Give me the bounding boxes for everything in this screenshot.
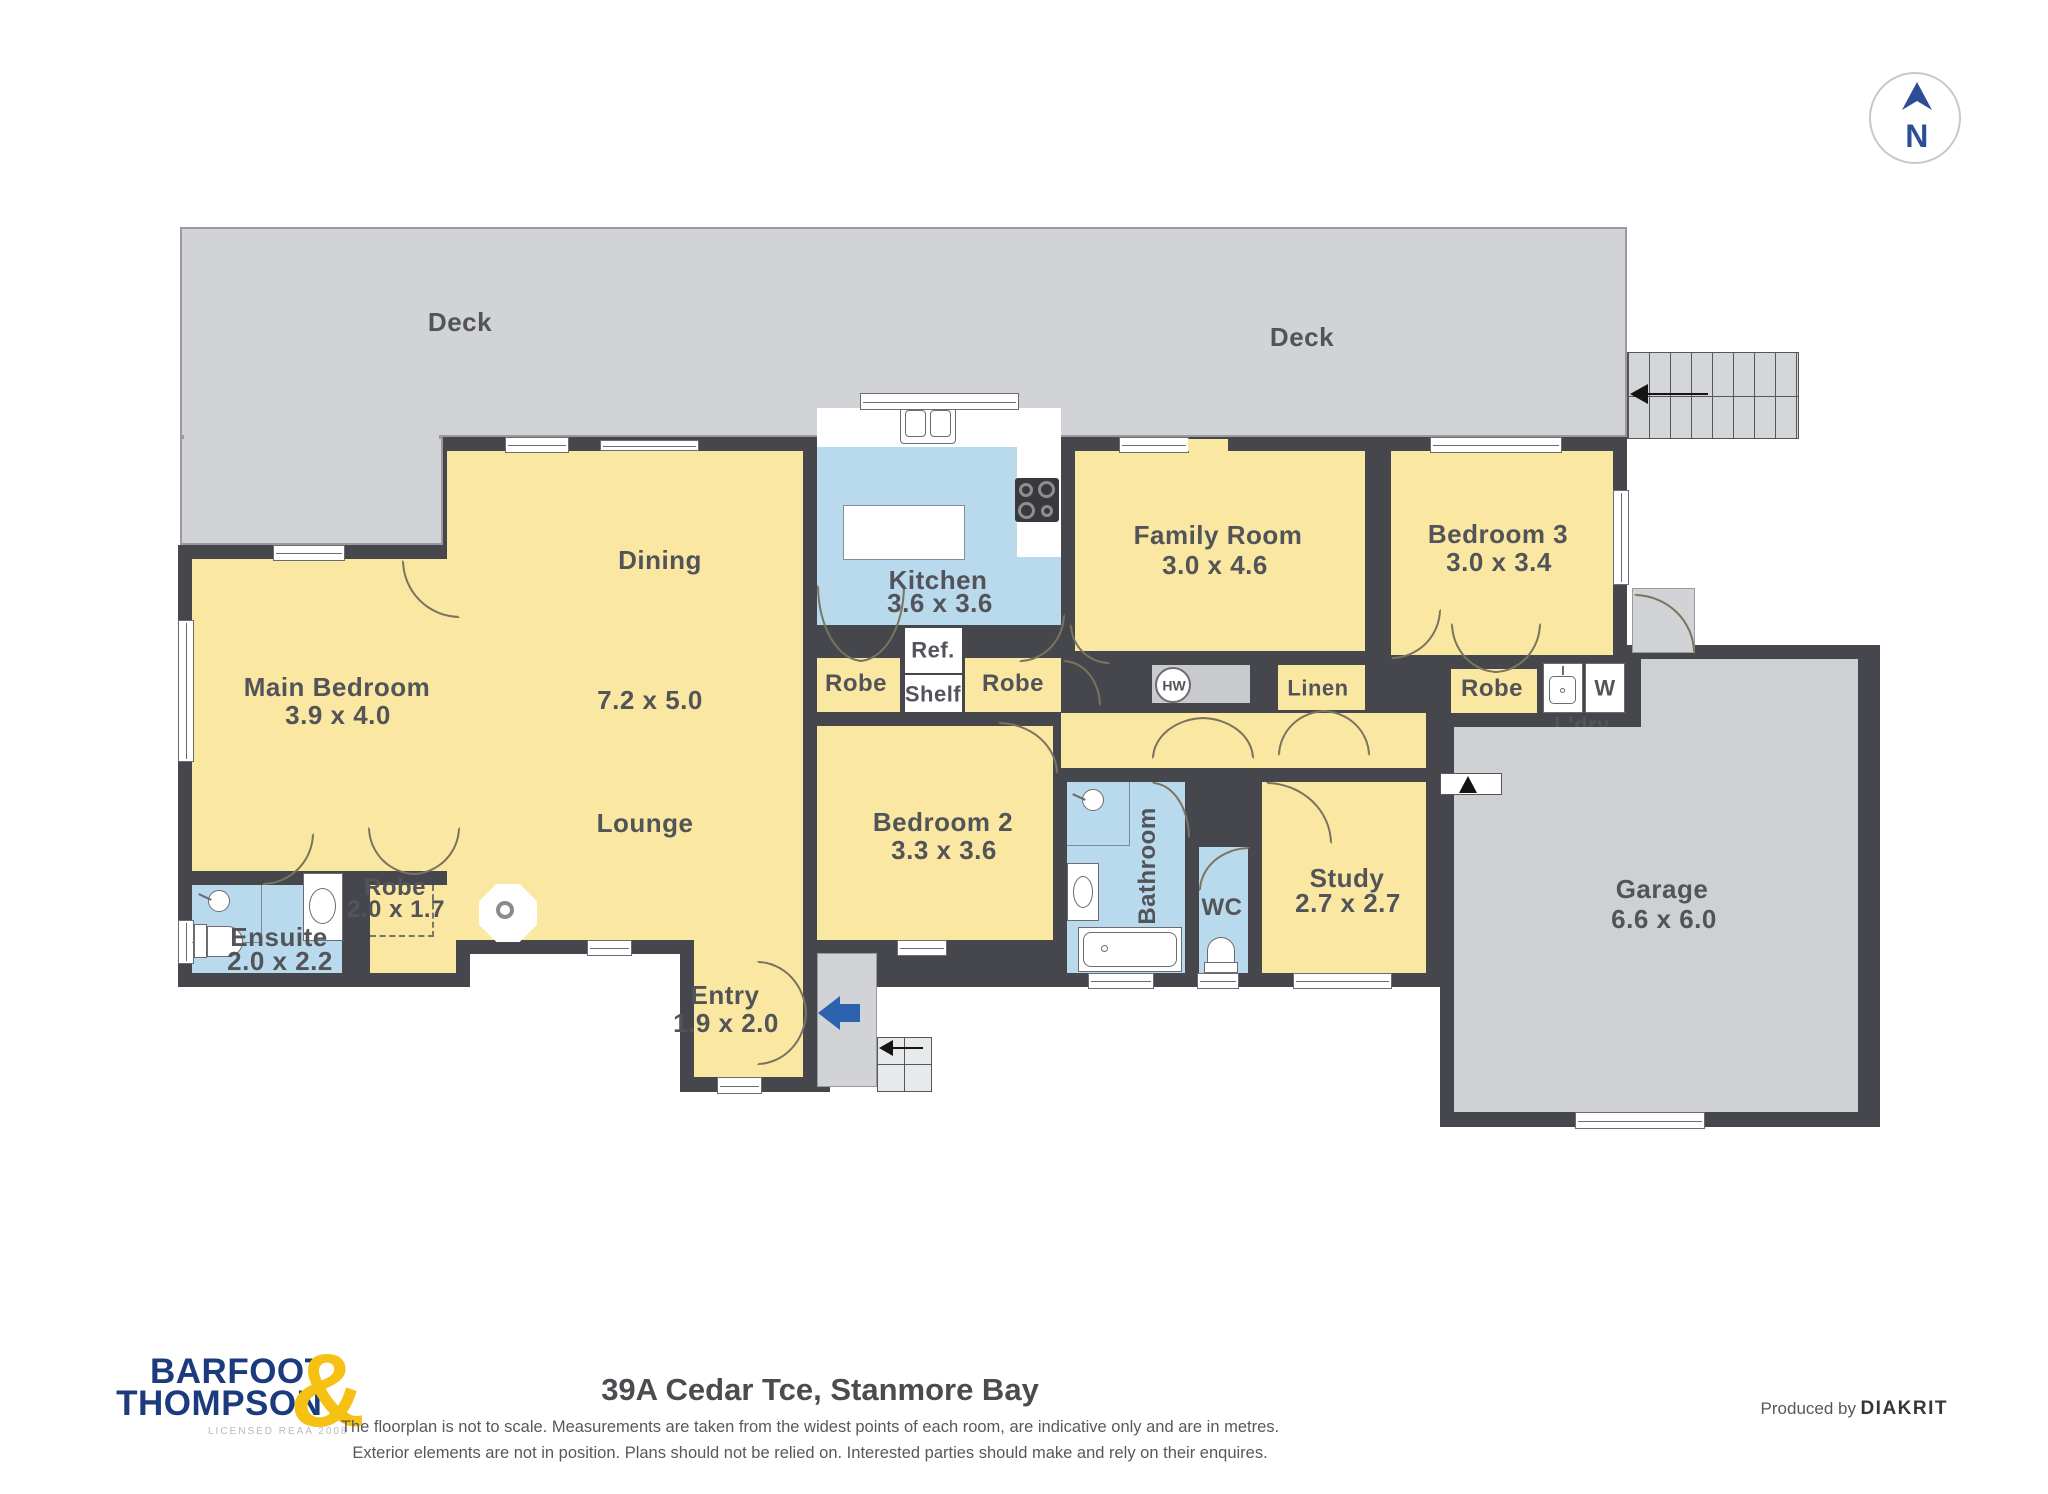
window-bedroom2-bottom	[897, 940, 947, 956]
deck-stairs-midline	[1628, 396, 1798, 397]
floorplan-page: { "compass": { "label": "N" }, "colors":…	[0, 0, 2048, 1494]
produced-by: Produced by DIAKRIT	[1761, 1398, 1948, 1420]
hw-label: HW	[1162, 677, 1185, 695]
deck-seam-patch	[184, 430, 439, 442]
laundry-tub-drain	[1560, 688, 1565, 693]
window-study-bottom	[1293, 973, 1392, 989]
compass: N	[1869, 72, 1961, 164]
address-title: 39A Cedar Tce, Stanmore Bay	[601, 1372, 1039, 1408]
stove-burner-3	[1018, 502, 1035, 519]
shelf-label: Shelf	[905, 680, 961, 708]
kitchen-stove-icon	[1015, 478, 1059, 522]
deck-stairs-down-arrow-icon	[1630, 384, 1648, 404]
slider-opening-family-room	[1188, 439, 1228, 451]
ensuite-sink-basin	[309, 888, 336, 924]
window-dining-2	[600, 440, 699, 451]
wc-label: WC	[1202, 893, 1243, 923]
bathroom-sink-basin	[1073, 876, 1093, 908]
disclaimer-line-1: The floorplan is not to scale. Measureme…	[341, 1414, 1279, 1440]
kitchen-sink-basin-right	[930, 410, 951, 437]
bedroom2-dims: 3.3 x 3.6	[891, 834, 997, 867]
garage-door	[1575, 1112, 1705, 1129]
produced-prefix: Produced by	[1761, 1399, 1856, 1418]
kitchen-sink-icon	[900, 404, 956, 444]
window-family-room	[1119, 437, 1189, 453]
garage-floor-top	[1641, 659, 1858, 727]
window-main-bedroom-left	[178, 620, 194, 762]
bathroom-sink-icon	[1067, 863, 1099, 921]
logo-licensed-text: LICENSED REAA 2008	[208, 1426, 349, 1437]
linen-label: Linen	[1287, 674, 1348, 702]
robe-bedroom3-label: Robe	[1461, 674, 1523, 704]
compass-north-label: N	[1905, 116, 1929, 156]
fridge-label: Ref.	[911, 636, 955, 664]
lounge-label: Lounge	[597, 807, 694, 840]
ensuite-toilet-tank	[194, 924, 207, 958]
window-lounge-bottom	[587, 940, 632, 956]
laundry-tub-icon	[1543, 663, 1583, 713]
kitchen-island	[843, 505, 965, 560]
robe-kitchen-left-label: Robe	[825, 669, 887, 699]
deck-stairs-arrow-stem	[1648, 393, 1708, 395]
bathtub-inner	[1083, 932, 1177, 967]
ensuite-shower-head-icon	[208, 890, 230, 912]
dining-label: Dining	[618, 544, 702, 577]
bathtub-drain	[1101, 945, 1108, 952]
entry-arrow-head	[818, 996, 840, 1030]
robe-main-dims: 2.0 x 1.7	[347, 895, 445, 925]
compass-north-arrow-icon	[1900, 82, 1934, 112]
bathtub-icon	[1078, 927, 1182, 972]
disclaimer-line-2: Exterior elements are not in position. P…	[352, 1440, 1267, 1466]
bedroom3-dims: 3.0 x 3.4	[1446, 546, 1552, 579]
family-room-label: Family Room	[1134, 519, 1303, 552]
deck-left-label: Deck	[428, 306, 492, 339]
window-bedroom3-right	[1613, 490, 1629, 585]
study-dims: 2.7 x 2.7	[1295, 887, 1401, 920]
bathroom-label: Bathroom	[1133, 807, 1163, 924]
entry-dims: 1.9 x 2.0	[673, 1007, 779, 1040]
window-dining-1	[505, 437, 569, 453]
ensuite-dims: 2.0 x 2.2	[227, 945, 333, 978]
deck-stairs	[1627, 352, 1799, 439]
garage-dims: 6.6 x 6.0	[1611, 903, 1717, 936]
wc-toilet-tank	[1204, 962, 1238, 973]
deck-right-label: Deck	[1270, 321, 1334, 354]
produced-brand: DIAKRIT	[1860, 1398, 1948, 1419]
robe-kitchen-right-label: Robe	[982, 669, 1044, 699]
laundry-tub-tap	[1562, 666, 1564, 675]
window-bathroom-bottom	[1088, 973, 1154, 989]
window-main-bedroom-top	[273, 545, 345, 561]
dining-dims-label: 7.2 x 5.0	[597, 684, 703, 717]
kitchen-dims: 3.6 x 3.6	[887, 587, 993, 620]
main-bedroom-dims: 3.9 x 4.0	[285, 699, 391, 732]
wc-toilet-bowl	[1207, 937, 1235, 965]
stove-burner-1	[1019, 483, 1033, 497]
entry-arrow-tail	[840, 1004, 860, 1022]
stove-burner-2	[1038, 481, 1055, 498]
window-kitchen	[860, 393, 1019, 410]
window-entry-bottom	[717, 1077, 762, 1094]
fireplace-icon	[479, 884, 537, 942]
entry-steps-arrow-icon	[879, 1040, 893, 1056]
garage-step-up-arrow-icon	[1459, 776, 1477, 793]
window-bedroom3-top	[1430, 437, 1562, 453]
entry-steps-arrow-stem	[893, 1047, 923, 1049]
fireplace-ring	[496, 901, 514, 919]
deck-area-left	[180, 437, 443, 545]
kitchen-sink-basin-left	[905, 410, 926, 437]
entry-direction-arrow-icon	[818, 996, 862, 1030]
window-wc-bottom	[1197, 973, 1239, 989]
garage-label: Garage	[1616, 873, 1709, 906]
stove-burner-4	[1041, 505, 1053, 517]
family-room-dims: 3.0 x 4.6	[1162, 549, 1268, 582]
laundry-washer-label: W	[1594, 674, 1615, 702]
